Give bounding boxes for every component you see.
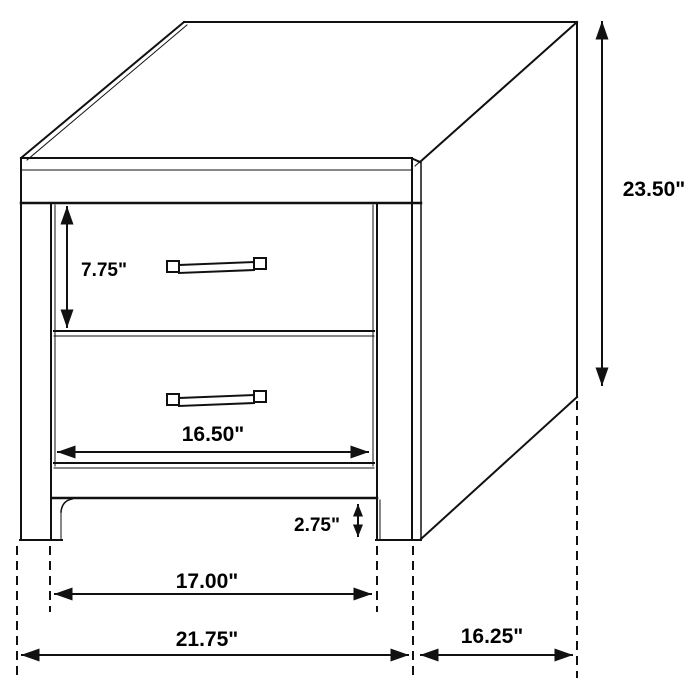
drawer-1-handle — [167, 258, 266, 273]
dimension-overall-depth: 16.25" — [420, 625, 573, 655]
dimension-leg-spacing: 17.00" — [54, 570, 372, 594]
dimension-label-base-clearance: 2.75" — [294, 515, 340, 536]
dimension-drawer-width: 16.50" — [57, 423, 369, 452]
dimension-overall-height: 23.50" — [602, 21, 685, 386]
apron-corbel — [61, 499, 72, 512]
drawer-2-handle — [167, 391, 266, 406]
dimension-drawer-front-height: 7.75" — [67, 206, 127, 328]
dimension-label-drawer-width: 16.50" — [182, 423, 245, 446]
cabinet-front — [20, 158, 421, 540]
nightstand-dimension-drawing: 7.75" 23.50" 16.50" 2.75" 17.00" 21.75" … — [0, 0, 700, 700]
dimension-label-leg-spacing: 17.00" — [176, 570, 239, 593]
dimension-label-overall-depth: 16.25" — [461, 625, 524, 648]
dimension-label-overall-width: 21.75" — [176, 628, 239, 651]
dimension-label-drawer-front-height: 7.75" — [81, 260, 127, 281]
dimension-label-overall-height: 23.50" — [623, 178, 686, 201]
dimension-base-clearance: 2.75" — [294, 504, 358, 537]
tabletop — [21, 22, 577, 203]
dimension-overall-width: 21.75" — [21, 628, 409, 655]
dimension-diagram: 7.75" 23.50" 16.50" 2.75" 17.00" 21.75" … — [0, 0, 700, 700]
side-panel — [421, 22, 577, 539]
